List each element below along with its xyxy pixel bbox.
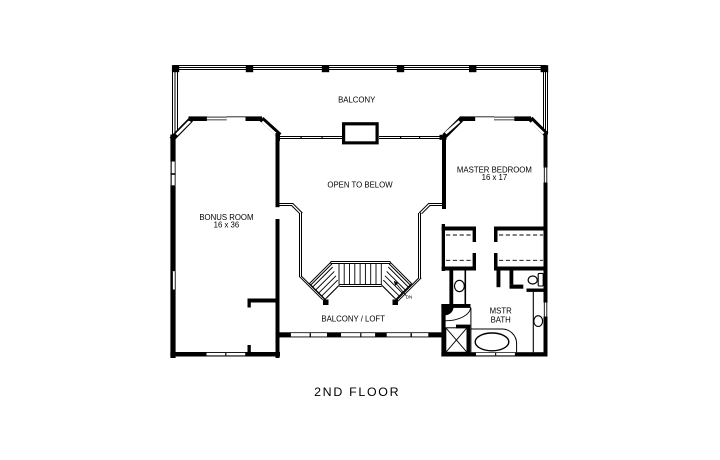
svg-text:16 x 17: 16 x 17 bbox=[482, 173, 508, 182]
svg-text:BALCONY: BALCONY bbox=[338, 96, 376, 105]
svg-text:OPEN TO BELOW: OPEN TO BELOW bbox=[327, 180, 393, 189]
svg-text:BALCONY / LOFT: BALCONY / LOFT bbox=[321, 315, 385, 324]
svg-text:BATH: BATH bbox=[491, 316, 511, 325]
svg-text:16 x 36: 16 x 36 bbox=[214, 221, 240, 230]
svg-text:DN: DN bbox=[406, 294, 413, 299]
svg-text:MSTR: MSTR bbox=[490, 306, 512, 315]
svg-text:2ND FLOOR: 2ND FLOOR bbox=[314, 385, 400, 399]
